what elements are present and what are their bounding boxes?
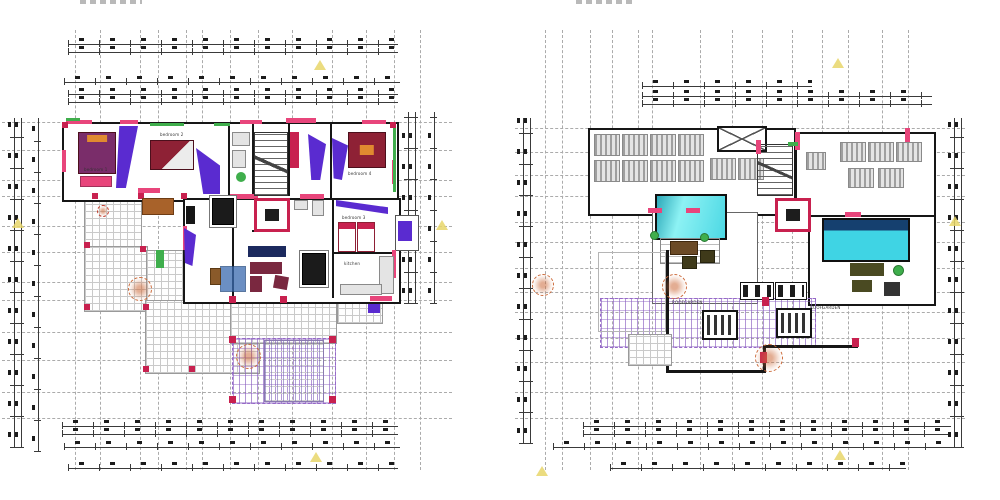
terrace-tiles [628,334,672,366]
bbq-counter [775,282,807,300]
roof-sofa [884,282,900,296]
grid-line [612,30,613,470]
elevator [775,198,811,232]
dim-chain [642,80,812,89]
grid-line [562,30,563,470]
staircase [254,132,288,196]
sofa [250,262,282,274]
tree [755,344,783,372]
kitchen-counter [340,284,382,295]
grid-line [545,30,546,470]
dining-table [212,198,234,225]
solar-panel [896,142,922,162]
column [181,193,187,199]
wall-accent [240,120,262,124]
section-marker [314,60,326,70]
grid-line [590,30,591,470]
bed [150,140,194,170]
sofa [250,276,262,292]
column [229,296,236,303]
dresser [80,176,112,187]
right-plan-title-smudge [576,0,632,4]
roof-sofa [852,280,872,292]
dim-chain [642,98,932,107]
tree [532,274,554,296]
solar-panel [650,160,676,182]
solar-panel [840,142,866,162]
wall-accent [756,140,761,154]
lower-roof-outline [598,252,666,332]
dim-chain [32,118,41,452]
section-marker [310,452,322,462]
column [280,296,287,303]
dim-chain [62,428,398,437]
section-marker [949,216,961,226]
dining-table [302,253,326,285]
interior-wall [330,124,332,198]
column [84,242,90,248]
wall-accent-green [66,118,80,121]
room-label: bedroom 1 [84,168,108,172]
tree [236,344,261,369]
wall-accent-green [393,128,396,192]
wall-accent-green [150,123,184,126]
planter [700,250,715,263]
wall-accent [300,194,324,199]
dim-chain [64,76,400,85]
column [62,122,68,128]
room-label: bedroom 3 [342,216,366,220]
kitchen-island [186,206,195,224]
wall-accent [362,120,386,124]
section-marker [12,218,24,228]
solar-panel [650,134,676,156]
dim-chain [409,112,418,304]
dim-chain [68,96,398,105]
plant [236,172,246,182]
pillow [360,145,374,155]
section-marker [436,220,448,230]
dim-chain [583,428,951,437]
wardrobe [398,221,412,241]
solar-panel [678,160,704,182]
plant [156,250,164,268]
wall-accent [286,118,316,123]
bath-fixture [294,200,308,210]
dim-chain [610,462,906,471]
tree [128,277,152,301]
armchair [273,275,289,290]
room-label: ROOFGARDEN [810,306,841,310]
section-marker [832,58,844,68]
terrace-parapet [666,370,766,373]
dim-chain [15,118,24,448]
bath-fixture [232,132,250,146]
roof-table [776,308,812,338]
column [143,304,149,310]
solar-panel [594,160,620,182]
room-label: bedroom 2 [160,133,184,137]
grid-line [638,30,639,470]
tree [97,205,109,217]
roof-table [702,310,738,340]
wall-accent [648,208,662,213]
solar-panel [622,134,648,156]
plant [650,231,659,240]
solar-panel [878,168,904,188]
dim-chain [68,46,398,55]
bed [348,132,386,168]
grid-line [2,418,452,419]
terrace-stair-ramp [264,340,324,402]
dim-chain [553,441,953,450]
column [852,338,859,347]
column [229,336,236,343]
tree [662,274,687,299]
grid-line [2,392,452,393]
solar-panel [868,142,894,162]
left-plan-title-smudge [80,0,142,4]
solar-panel [848,168,874,188]
wall-accent [62,150,66,172]
grid-line [420,30,421,470]
dim-chain [68,462,398,471]
rug [220,266,246,292]
room-label: kitchen [344,262,360,266]
dim-chain [64,441,400,450]
wall-accent-green [788,142,798,146]
dim-chain [955,118,964,448]
staircase [757,144,793,196]
pool [655,194,727,240]
closet [290,132,299,168]
kitchen-counter [142,198,174,215]
grid-line [515,418,965,419]
wall-accent [120,120,138,124]
column [329,336,336,343]
column [390,122,396,128]
terrace-tiles [84,196,142,248]
column [189,366,195,372]
wall-accent [905,128,910,142]
wall-accent [795,132,800,150]
sofa [248,246,286,257]
drawing-sheet: bedroom 1 bedroom 2 bedroom 4 bedroom 3 … [0,0,1000,500]
wall-accent [370,296,392,301]
bath-fixture [312,200,324,216]
dim-chain [428,112,437,304]
column [92,193,98,199]
room-label: bedroom 4 [348,172,372,176]
solar-panel [678,134,704,156]
solar-panel [710,158,736,180]
interior-wall [332,198,334,298]
elevator [254,198,290,232]
bath-fixture [232,150,246,168]
section-marker [834,450,846,460]
planter [682,256,697,269]
section-marker [536,466,548,476]
column [84,304,90,310]
solar-panel [594,134,620,156]
roof-sofa [850,263,884,276]
grid-line [515,392,965,393]
column [329,396,336,403]
wall-accent [845,212,861,217]
solar-panel [622,160,648,182]
wall-accent-green [214,123,230,126]
plant [893,265,904,276]
column [140,246,146,252]
column [143,366,149,372]
deck-table [670,241,698,255]
grid-line [515,362,965,363]
solar-panel [806,152,826,170]
room-label: ROOFGARDEN [672,301,703,305]
pillow [87,135,107,142]
interior-wall [332,252,395,254]
wall-accent [686,208,700,213]
interior-wall [228,124,230,196]
plant [700,233,709,242]
column [762,297,769,306]
pool [822,218,910,262]
bed [338,222,356,252]
coffee-table [210,268,221,285]
bed [357,222,375,252]
column [229,396,236,403]
